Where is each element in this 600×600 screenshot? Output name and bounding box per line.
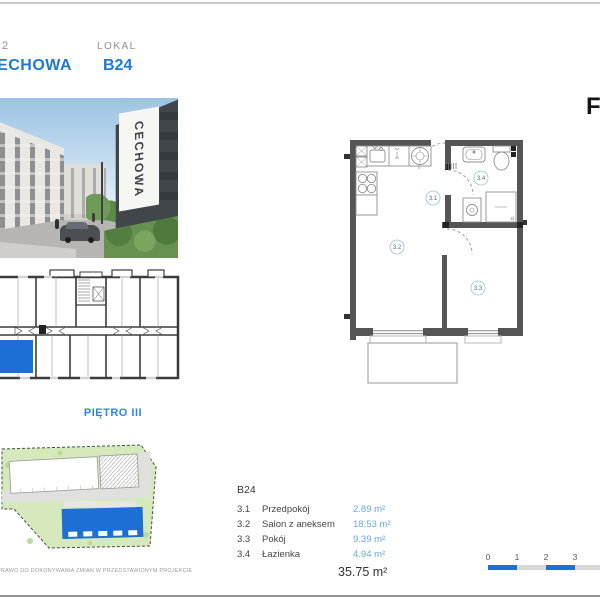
room-label-room: 3.3 xyxy=(474,286,483,292)
brand-logo: F xyxy=(586,93,600,121)
scale-tick: 0 xyxy=(482,552,494,562)
site-plan xyxy=(0,425,190,575)
kitchen-fixtures xyxy=(356,145,431,215)
highlighted-building xyxy=(62,507,144,539)
stage-number: 2 xyxy=(2,40,8,52)
room-area: 18.53 m² xyxy=(353,517,405,532)
gable-wall: CECHOWA xyxy=(119,106,159,211)
room-label-living: 3.2 xyxy=(393,245,402,251)
legend-row: 3.3 Pokój 9.39 m² xyxy=(237,532,405,547)
lokal-label: LOKAL xyxy=(97,41,137,52)
existing-building xyxy=(9,457,99,494)
scale-tick: 3 xyxy=(569,552,581,562)
car-roof xyxy=(66,222,88,229)
scale-segment xyxy=(546,565,575,570)
legend-row: 3.4 Łazienka 4.94 m² xyxy=(237,547,405,562)
scale-tick: 1 xyxy=(511,552,523,562)
disclaimer-text: PRAWO DO DOKONYWANIA ZMIAN W PRZEDSTAWIO… xyxy=(0,568,192,574)
building-sign: CECHOWA xyxy=(132,119,146,198)
balcony xyxy=(368,343,457,383)
room-name: Pokój xyxy=(262,532,353,547)
room-area: 2.89 m² xyxy=(353,502,405,517)
room-name: Salon z aneksem xyxy=(262,517,353,532)
hatched-building xyxy=(99,454,139,489)
scale-segment xyxy=(488,565,517,570)
scale-bar: 0 1 2 3 xyxy=(486,552,600,574)
scale-tick: 2 xyxy=(540,552,552,562)
total-area: 35.75 m² xyxy=(338,565,405,579)
building-photo: CECHOWA xyxy=(0,98,178,258)
unit-floor-plan: 3.1 3.2 3.3 3.4 xyxy=(335,130,535,390)
legend-row: 3.2 Salon z aneksem 18.53 m² xyxy=(237,517,405,532)
legend-row: 3.1 Przedpokój 2.89 m² xyxy=(237,502,405,517)
side-road xyxy=(138,451,152,489)
bottom-rule xyxy=(0,595,600,597)
car-wheel xyxy=(65,237,71,243)
room-number: 3.4 xyxy=(237,547,262,562)
project-name: CECHOWA xyxy=(0,57,72,75)
room-labels: 3.1 3.2 3.3 3.4 xyxy=(390,171,488,295)
room-name: Łazienka xyxy=(262,547,353,562)
car-wheel xyxy=(88,237,94,243)
parking-strip xyxy=(64,501,136,507)
room-name: Przedpokój xyxy=(262,502,353,517)
apartment-card: 2 CECHOWA LOKAL B24 F CECHOWA xyxy=(0,0,600,600)
top-rule xyxy=(0,2,600,4)
legend-unit-number: B24 xyxy=(237,484,405,496)
room-number: 3.3 xyxy=(237,532,262,547)
right-building-windows xyxy=(160,112,178,208)
person-icon xyxy=(55,219,59,229)
room-label-hall: 3.1 xyxy=(429,196,438,202)
room-area: 9.39 m² xyxy=(353,532,405,547)
room-number: 3.2 xyxy=(237,517,262,532)
scale-segment xyxy=(575,565,600,570)
floor-label: PIĘTRO III xyxy=(38,407,188,419)
room-legend: B24 3.1 Przedpokój 2.89 m² 3.2 Salon z a… xyxy=(237,484,405,579)
room-label-bath: 3.4 xyxy=(477,176,486,182)
floor-key-plan xyxy=(0,262,190,384)
highlighted-unit xyxy=(0,340,33,373)
lamp-post xyxy=(101,162,103,224)
person-icon xyxy=(92,213,95,222)
scale-segment xyxy=(517,565,546,570)
unit-number: B24 xyxy=(103,57,132,75)
room-number: 3.1 xyxy=(237,502,262,517)
room-area: 4.94 m² xyxy=(353,547,405,562)
